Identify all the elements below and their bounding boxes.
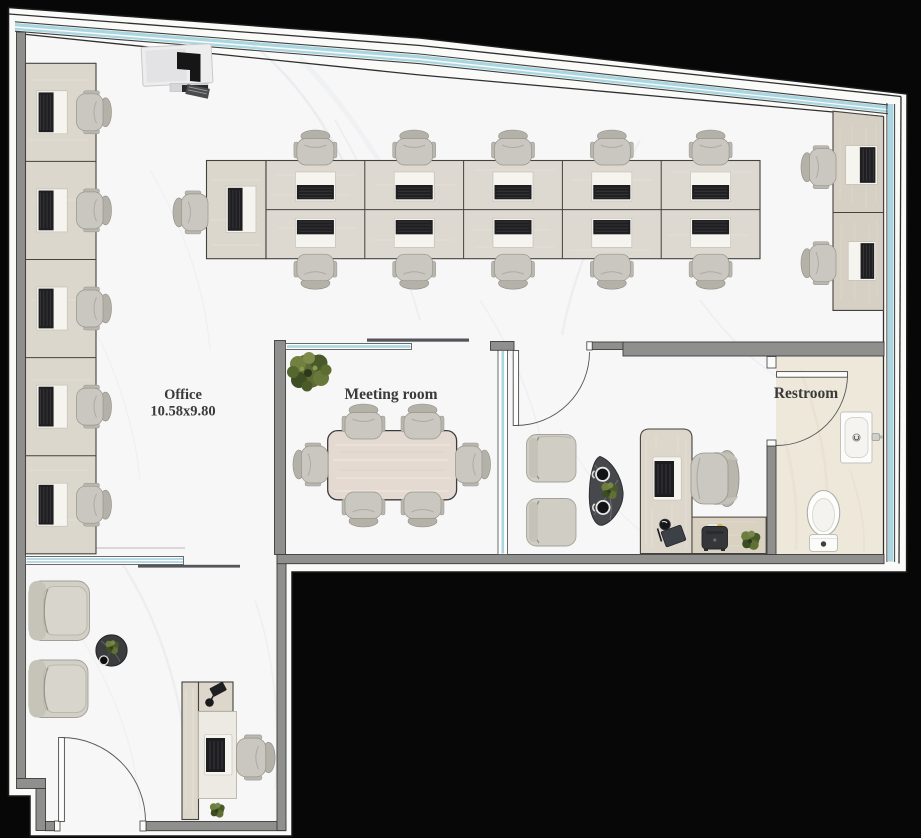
svg-text:Restroom: Restroom — [774, 385, 838, 402]
svg-text:Office: Office — [164, 387, 202, 403]
svg-text:Meeting room: Meeting room — [344, 386, 437, 403]
svg-text:10.58x9.80: 10.58x9.80 — [150, 404, 215, 420]
